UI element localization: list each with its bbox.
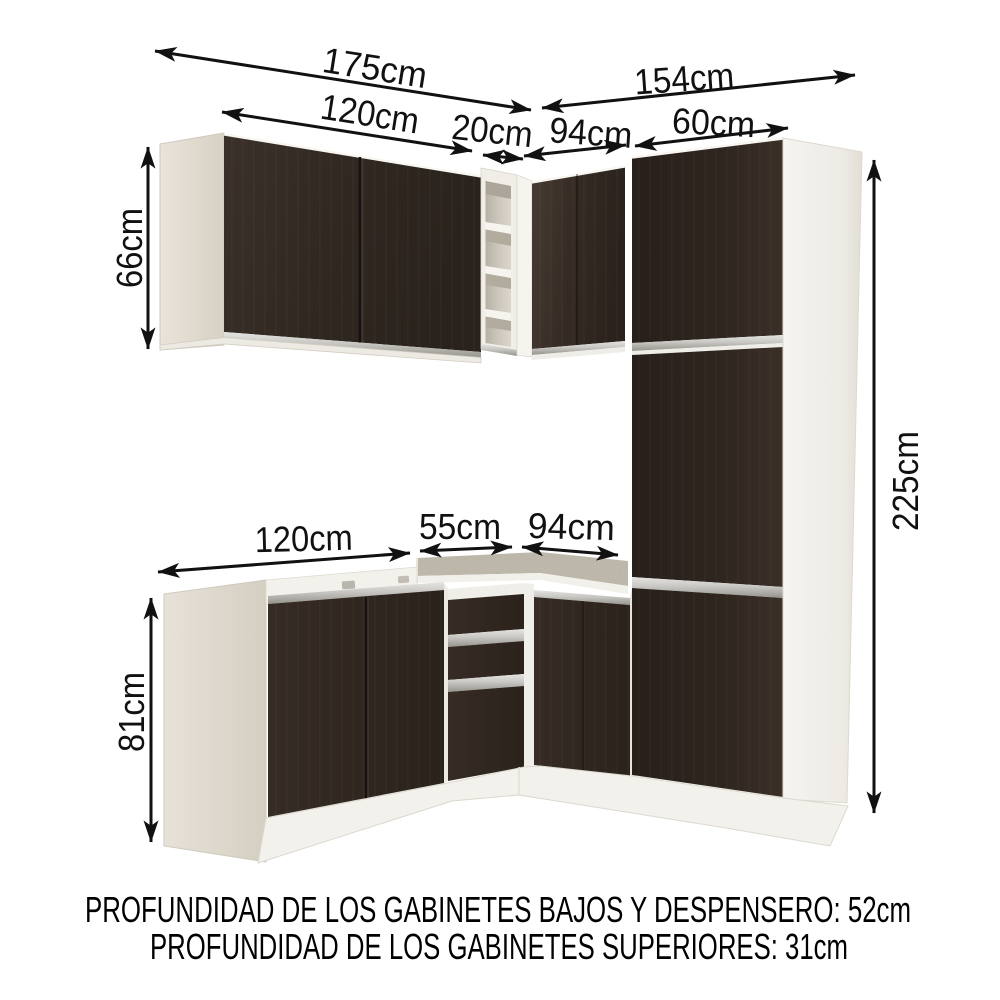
svg-text:120cm: 120cm (254, 517, 353, 561)
svg-text:94cm: 94cm (527, 505, 615, 548)
svg-text:60cm: 60cm (671, 100, 756, 145)
svg-text:81cm: 81cm (111, 672, 152, 752)
svg-text:66cm: 66cm (109, 208, 150, 288)
svg-text:55cm: 55cm (419, 506, 501, 547)
svg-text:PROFUNDIDAD DE LOS GABINETES B: PROFUNDIDAD DE LOS GABINETES BAJOS Y DES… (85, 889, 911, 930)
svg-text:PROFUNDIDAD DE LOS GABINETES S: PROFUNDIDAD DE LOS GABINETES SUPERIORES:… (150, 926, 848, 967)
svg-text:20cm: 20cm (450, 106, 535, 155)
svg-text:225cm: 225cm (885, 431, 926, 531)
svg-text:94cm: 94cm (548, 109, 634, 156)
svg-text:154cm: 154cm (633, 55, 736, 103)
